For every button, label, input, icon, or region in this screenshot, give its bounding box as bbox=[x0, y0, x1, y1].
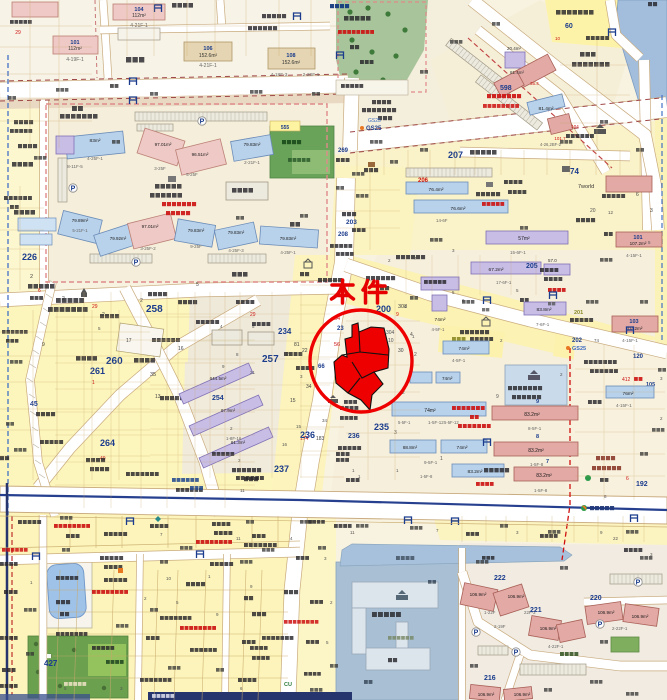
svg-text:5-5F-1: 5-5F-1 bbox=[398, 420, 411, 425]
svg-text:201: 201 bbox=[574, 310, 583, 316]
svg-text:74m²: 74m² bbox=[435, 317, 446, 323]
svg-text:81.4m²: 81.4m² bbox=[539, 106, 554, 112]
svg-text:4-22F-1: 4-22F-1 bbox=[548, 644, 564, 649]
svg-text:112m²: 112m² bbox=[132, 13, 146, 19]
svg-text:208: 208 bbox=[338, 232, 349, 238]
svg-text:76.6m²: 76.6m² bbox=[451, 206, 466, 212]
svg-text:35: 35 bbox=[150, 372, 156, 378]
svg-text:2-21F-1: 2-21F-1 bbox=[244, 160, 260, 165]
svg-text:4-15F-1: 4-15F-1 bbox=[616, 403, 632, 408]
svg-text:14-6F: 14-6F bbox=[436, 218, 448, 223]
svg-text:555: 555 bbox=[281, 125, 290, 131]
svg-text:2-20F-1: 2-20F-1 bbox=[303, 72, 320, 78]
svg-text:11: 11 bbox=[236, 536, 241, 541]
svg-text:1-8F-16: 1-8F-16 bbox=[226, 436, 242, 441]
svg-text:106.9m²: 106.9m² bbox=[540, 626, 557, 631]
svg-text:3: 3 bbox=[650, 208, 653, 214]
svg-text:74m²: 74m² bbox=[457, 445, 468, 451]
svg-text:10: 10 bbox=[555, 36, 561, 41]
svg-text:4-21F-1: 4-21F-1 bbox=[199, 63, 217, 69]
svg-text:2-19F: 2-19F bbox=[494, 624, 506, 629]
svg-text:97.01m²: 97.01m² bbox=[142, 224, 159, 229]
svg-text:202: 202 bbox=[572, 338, 583, 344]
svg-text:6: 6 bbox=[636, 192, 639, 198]
svg-text:4-18F-3: 4-18F-3 bbox=[271, 72, 288, 78]
svg-text:2: 2 bbox=[30, 274, 33, 280]
svg-text:57.0: 57.0 bbox=[548, 258, 557, 263]
svg-text:120: 120 bbox=[633, 354, 644, 360]
svg-text:57m²: 57m² bbox=[518, 236, 530, 242]
svg-text:P: P bbox=[71, 186, 76, 193]
svg-text:83.2m²: 83.2m² bbox=[536, 473, 552, 479]
svg-text:4-15F-1: 4-15F-1 bbox=[626, 253, 642, 258]
svg-text:644.5m²: 644.5m² bbox=[210, 376, 227, 381]
svg-text:4-25F-3: 4-25F-3 bbox=[228, 248, 244, 253]
svg-text:16: 16 bbox=[282, 442, 288, 447]
svg-text:96.51m²: 96.51m² bbox=[192, 152, 209, 157]
svg-text:269: 269 bbox=[338, 148, 349, 154]
svg-text:P: P bbox=[474, 630, 479, 637]
svg-text:412: 412 bbox=[622, 377, 631, 383]
svg-text:22: 22 bbox=[613, 536, 619, 541]
svg-text:79.89m²: 79.89m² bbox=[72, 218, 89, 223]
svg-text:29: 29 bbox=[15, 30, 21, 36]
svg-text:17-6F-1: 17-6F-1 bbox=[496, 280, 512, 285]
svg-text:83.8m²: 83.8m² bbox=[537, 307, 552, 313]
svg-text:79.92m²: 79.92m² bbox=[110, 236, 127, 241]
svg-text:P: P bbox=[200, 119, 205, 126]
svg-text:237: 237 bbox=[274, 464, 289, 474]
svg-text:74: 74 bbox=[570, 167, 579, 176]
svg-text:1: 1 bbox=[440, 456, 443, 462]
svg-text:8-11F-5: 8-11F-5 bbox=[67, 164, 83, 169]
svg-text:P: P bbox=[636, 580, 641, 587]
svg-text:88.8m²: 88.8m² bbox=[403, 445, 418, 450]
svg-text:79.83m²: 79.83m² bbox=[280, 236, 297, 241]
svg-text:79.83m²: 79.83m² bbox=[244, 142, 261, 147]
svg-text:235: 235 bbox=[374, 422, 389, 432]
svg-text:83.2m²: 83.2m² bbox=[524, 412, 540, 418]
svg-text:106.9m²: 106.9m² bbox=[508, 594, 525, 599]
svg-text:79.83m²: 79.83m² bbox=[228, 230, 245, 235]
svg-text:4-25F-1: 4-25F-1 bbox=[280, 250, 296, 255]
svg-text:23: 23 bbox=[337, 326, 344, 332]
svg-text:1-5F-8: 1-5F-8 bbox=[534, 488, 548, 493]
svg-text:1-22F: 1-22F bbox=[484, 610, 496, 615]
svg-text:10: 10 bbox=[166, 576, 172, 581]
svg-text:9: 9 bbox=[42, 342, 45, 348]
svg-text:3-25F: 3-25F bbox=[154, 166, 166, 171]
svg-text:GS25: GS25 bbox=[572, 346, 586, 352]
svg-text:9: 9 bbox=[496, 394, 499, 400]
svg-text:183: 183 bbox=[316, 436, 325, 442]
svg-text:11: 11 bbox=[350, 530, 355, 535]
svg-text:GS25: GS25 bbox=[368, 118, 381, 124]
svg-text:8-5F-1: 8-5F-1 bbox=[528, 426, 542, 431]
svg-text:260: 260 bbox=[106, 356, 123, 367]
svg-text:5-25F: 5-25F bbox=[186, 172, 198, 177]
svg-text:15-6F-1: 15-6F-1 bbox=[510, 250, 526, 255]
svg-text:216: 216 bbox=[484, 675, 496, 682]
svg-text:29: 29 bbox=[92, 304, 98, 310]
svg-text:81.4m²: 81.4m² bbox=[510, 70, 525, 75]
svg-text:66: 66 bbox=[318, 364, 325, 370]
svg-text:5-5F-12: 5-5F-12 bbox=[444, 420, 459, 425]
svg-text:4-15F-1: 4-15F-1 bbox=[622, 338, 638, 343]
svg-text:206: 206 bbox=[418, 178, 429, 184]
svg-text:GS25: GS25 bbox=[366, 126, 382, 132]
svg-text:12: 12 bbox=[608, 210, 614, 215]
svg-text:106.9m²: 106.9m² bbox=[470, 592, 487, 597]
svg-text:20: 20 bbox=[590, 208, 596, 214]
svg-text:6: 6 bbox=[38, 288, 41, 294]
svg-text:74: 74 bbox=[594, 338, 600, 343]
svg-text:103: 103 bbox=[629, 319, 638, 325]
svg-text:106.9m²: 106.9m² bbox=[598, 610, 615, 615]
svg-text:CU: CU bbox=[284, 682, 292, 688]
svg-text:254: 254 bbox=[212, 395, 224, 402]
svg-text:7world: 7world bbox=[578, 184, 594, 190]
svg-text:106.9m²: 106.9m² bbox=[514, 692, 531, 697]
svg-text:5-21F-1: 5-21F-1 bbox=[72, 228, 88, 233]
svg-text:1-5F-8: 1-5F-8 bbox=[530, 462, 544, 467]
svg-text:60: 60 bbox=[565, 23, 573, 30]
svg-text:236: 236 bbox=[300, 430, 315, 440]
svg-text:598: 598 bbox=[500, 85, 512, 92]
svg-text:2-22F-1: 2-22F-1 bbox=[612, 626, 628, 631]
svg-text:2: 2 bbox=[140, 298, 143, 304]
svg-text:P: P bbox=[598, 622, 603, 629]
svg-text:15: 15 bbox=[296, 424, 302, 429]
svg-text:220: 220 bbox=[590, 595, 602, 602]
svg-text:106.9m²: 106.9m² bbox=[478, 692, 495, 697]
svg-text:236: 236 bbox=[348, 433, 360, 440]
svg-text:257: 257 bbox=[262, 354, 279, 365]
svg-text:76.4m²: 76.4m² bbox=[429, 187, 444, 193]
svg-text:108: 108 bbox=[286, 53, 295, 59]
svg-text:258: 258 bbox=[146, 304, 163, 315]
svg-text:9: 9 bbox=[536, 399, 539, 405]
svg-text:11: 11 bbox=[240, 488, 245, 493]
svg-text:234: 234 bbox=[278, 327, 292, 336]
svg-text:1: 1 bbox=[92, 380, 95, 386]
svg-text:3-25F-2: 3-25F-2 bbox=[140, 246, 156, 251]
svg-text:304: 304 bbox=[386, 330, 395, 336]
svg-text:16: 16 bbox=[178, 346, 184, 352]
svg-text:106.9m²: 106.9m² bbox=[632, 614, 649, 619]
svg-text:4-26,2BF-2: 4-26,2BF-2 bbox=[540, 142, 562, 147]
svg-text:7: 7 bbox=[546, 459, 549, 465]
svg-text:9-5F-1: 9-5F-1 bbox=[424, 460, 438, 465]
svg-text:83.2m²: 83.2m² bbox=[528, 448, 544, 454]
svg-text:74m²: 74m² bbox=[459, 346, 470, 352]
svg-text:83.2m²: 83.2m² bbox=[468, 469, 483, 475]
svg-text:45: 45 bbox=[30, 401, 38, 408]
svg-text:203: 203 bbox=[346, 219, 357, 226]
svg-text:17: 17 bbox=[126, 338, 132, 344]
svg-text:221: 221 bbox=[530, 607, 542, 614]
svg-text:83m²: 83m² bbox=[90, 138, 101, 144]
svg-text:35.4: 35.4 bbox=[530, 81, 539, 86]
svg-text:30: 30 bbox=[398, 348, 404, 354]
svg-text:152.6m²: 152.6m² bbox=[199, 53, 218, 59]
svg-text:81: 81 bbox=[294, 342, 300, 348]
svg-text:427: 427 bbox=[44, 659, 58, 668]
svg-text:152.6m²: 152.6m² bbox=[282, 60, 301, 66]
svg-text:P: P bbox=[134, 260, 139, 267]
svg-text:34: 34 bbox=[322, 418, 328, 423]
svg-text:4-5F-1: 4-5F-1 bbox=[452, 358, 466, 363]
svg-text:22: 22 bbox=[302, 348, 308, 354]
svg-text:4-5F-1: 4-5F-1 bbox=[432, 327, 445, 332]
svg-text:264: 264 bbox=[100, 438, 115, 448]
svg-text:7-6F-1: 7-6F-1 bbox=[536, 322, 550, 327]
svg-text:104: 104 bbox=[571, 124, 579, 129]
svg-text:106: 106 bbox=[203, 46, 212, 52]
svg-text:192: 192 bbox=[636, 481, 648, 488]
svg-text:226: 226 bbox=[22, 252, 37, 262]
svg-text:222: 222 bbox=[494, 575, 506, 582]
svg-text:5: 5 bbox=[196, 282, 199, 288]
svg-text:15: 15 bbox=[290, 398, 296, 404]
svg-text:1-5F-12: 1-5F-12 bbox=[428, 420, 444, 425]
svg-text:97.01m²: 97.01m² bbox=[155, 142, 172, 147]
svg-text:8: 8 bbox=[536, 434, 539, 440]
svg-text:4-25F-1: 4-25F-1 bbox=[87, 156, 103, 161]
svg-text:107.2m²: 107.2m² bbox=[630, 241, 647, 246]
svg-text:2: 2 bbox=[414, 352, 417, 358]
svg-text:1-5F-8: 1-5F-8 bbox=[420, 474, 433, 479]
svg-text:21: 21 bbox=[250, 370, 256, 375]
svg-text:9-25F: 9-25F bbox=[190, 244, 202, 249]
svg-text:4-19F-1: 4-19F-1 bbox=[66, 57, 84, 63]
svg-text:207: 207 bbox=[448, 150, 463, 160]
svg-text:13: 13 bbox=[155, 394, 161, 400]
svg-text:20.4m²: 20.4m² bbox=[507, 46, 522, 51]
svg-text:74m²: 74m² bbox=[442, 376, 453, 381]
svg-text:6: 6 bbox=[626, 476, 629, 482]
svg-text:9: 9 bbox=[396, 312, 399, 318]
svg-text:74m²: 74m² bbox=[424, 408, 436, 414]
svg-text:56: 56 bbox=[334, 342, 340, 348]
svg-text:P: P bbox=[514, 650, 519, 657]
svg-text:79.83m²: 79.83m² bbox=[188, 228, 205, 233]
svg-text:67.2m²: 67.2m² bbox=[489, 267, 504, 273]
